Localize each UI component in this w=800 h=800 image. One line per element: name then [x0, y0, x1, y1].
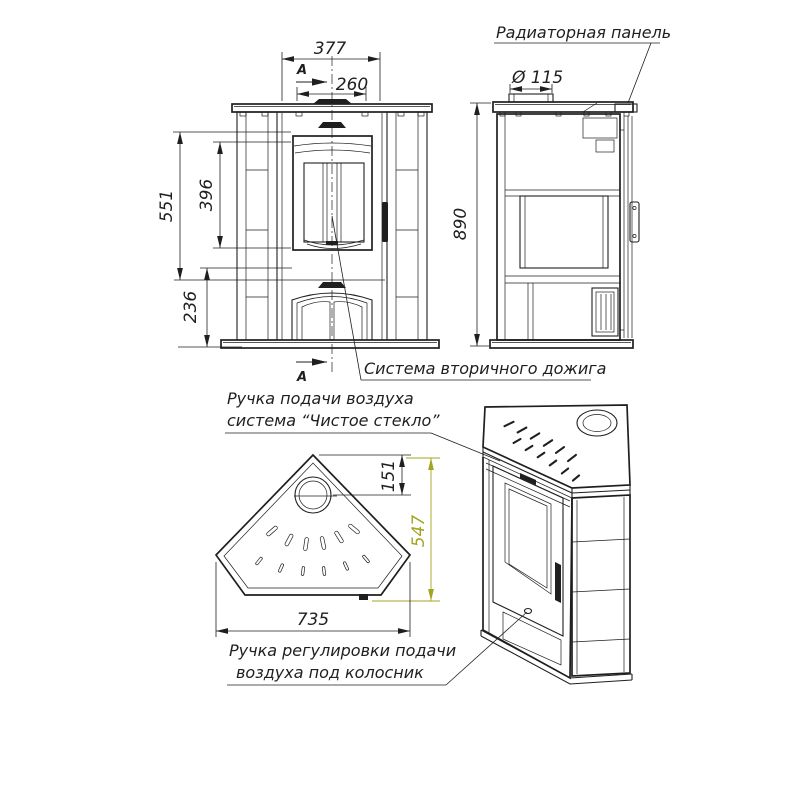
top-foot	[359, 594, 368, 600]
front-base	[221, 340, 439, 348]
radiator-panel-label: Радиаторная панель	[496, 23, 671, 42]
section-mark-bottom: A	[296, 362, 327, 385]
dim-236-text: 236	[181, 291, 201, 324]
iso-flue-opening	[577, 410, 617, 436]
iso-grate-knob	[525, 609, 532, 614]
air-handle-label-line1: Ручка подачи воздуха	[227, 389, 414, 408]
dim-396-text: 396	[197, 179, 217, 212]
stove-drawing: A A 377 260 551 396	[0, 0, 800, 800]
isometric-view	[481, 405, 632, 684]
dim-551-text: 551	[157, 190, 177, 222]
iso-door-handle	[555, 562, 561, 603]
section-mark-top: A	[296, 63, 327, 82]
front-left-tile-column	[237, 112, 277, 340]
radiator-panel-leader	[628, 43, 651, 103]
side-flue-collar	[509, 94, 553, 102]
dim-735: 735	[216, 562, 410, 637]
front-right-tile-column	[387, 112, 427, 340]
technical-drawing-page: A A 377 260 551 396	[0, 0, 800, 800]
dim-890-text: 890	[451, 208, 471, 240]
top-convection-slots-outer	[266, 523, 360, 550]
secondary-combustion-leader	[332, 216, 361, 380]
side-body	[497, 114, 620, 340]
iso-air-band	[486, 463, 570, 507]
front-door-glass	[304, 163, 364, 242]
air-handle-leader	[431, 433, 500, 461]
iso-right-tile-side	[572, 495, 630, 676]
dim-735-text: 735	[297, 610, 329, 630]
dim-151-text: 151	[379, 460, 399, 492]
dim-890: 890	[451, 103, 491, 346]
side-flue-damper-box	[583, 118, 617, 152]
section-letter-bottom: A	[296, 370, 307, 385]
front-door-handle	[382, 202, 388, 242]
air-handle-label-line2: система “Чистое стекло”	[227, 411, 440, 430]
dim-flue-diameter-text: Ø 115	[511, 68, 563, 88]
top-flue-opening	[294, 477, 337, 513]
dim-551: 551	[157, 132, 385, 280]
dim-547-text: 547	[409, 515, 429, 548]
dim-flue-diameter: Ø 115	[510, 68, 563, 93]
side-ash-drawer	[592, 288, 618, 336]
dim-377-text: 377	[314, 39, 347, 59]
iso-door-glass	[505, 483, 551, 594]
top-convection-slots-inner	[255, 555, 370, 576]
side-view: 890 Ø 115 Радиаторная панель	[451, 23, 671, 348]
secondary-combustion-label: Система вторичного дожига	[364, 359, 606, 378]
side-base	[490, 340, 633, 348]
iso-door	[493, 466, 563, 636]
dim-260-text: 260	[336, 75, 368, 95]
callout-radiator-panel: Радиаторная панель	[494, 23, 671, 103]
callout-grate-air: Ручка регулировки подачи воздуха под кол…	[227, 612, 527, 685]
side-firebox	[505, 196, 620, 283]
front-view: A A 377 260 551 396	[157, 39, 439, 385]
grate-air-label-line2: воздуха под колосник	[236, 663, 424, 682]
dim-260: 260	[297, 75, 368, 101]
side-door-handle	[630, 202, 639, 242]
side-top-plate	[493, 102, 633, 112]
front-cooking-lens	[313, 99, 352, 104]
callout-air-handle: Ручка подачи воздуха система “Чистое сте…	[225, 389, 500, 461]
top-view: 151 547 735	[216, 455, 440, 637]
grate-air-label-line1: Ручка регулировки подачи	[229, 641, 456, 660]
front-door	[293, 136, 372, 250]
section-letter-top: A	[296, 63, 307, 78]
